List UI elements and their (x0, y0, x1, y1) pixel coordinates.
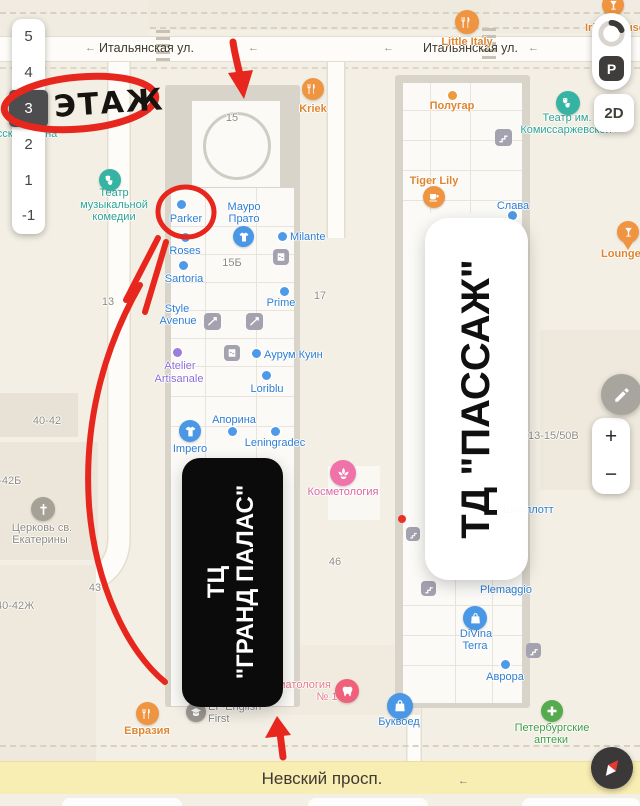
store-marker[interactable] (280, 287, 289, 296)
one-way-arrow-icon: ← (383, 42, 394, 54)
poi-label-lounger[interactable]: LoungeR (601, 248, 640, 260)
passage-line: ТД "ПАССАЖ" (454, 259, 499, 538)
clothing-icon[interactable] (233, 226, 254, 247)
edit-pencil-button[interactable] (601, 374, 640, 415)
room-divider (403, 605, 522, 606)
store-label-mauro-1[interactable]: Мауро (228, 201, 261, 213)
building-block (522, 798, 640, 806)
store-label-style-avenue-2[interactable]: Avenue (159, 315, 196, 327)
poi-label-teatr-muz-2[interactable]: музыкальной (80, 199, 148, 211)
store-label-plemaggio[interactable]: Plemaggio (480, 584, 532, 596)
zoom-out-button[interactable]: − (592, 456, 630, 494)
parking-label: P (607, 61, 616, 77)
poi-label-polugar[interactable]: Полугар (430, 100, 475, 112)
building-block (62, 798, 182, 806)
floor-button-4[interactable]: 4 (12, 55, 45, 91)
room-divider (455, 575, 456, 703)
map-canvas[interactable]: ← Итальянская ул. ← ← Итальянская ул. ← … (0, 0, 640, 806)
building-number: 40-42Ж (0, 600, 34, 612)
store-marker[interactable] (173, 348, 182, 357)
floor-button-2[interactable]: 2 (12, 127, 45, 163)
poi-label-kosmetologia[interactable]: Косметология (308, 486, 379, 498)
room-divider (403, 170, 522, 171)
escalator-icon (204, 313, 221, 330)
store-label-prime[interactable]: Prime (267, 297, 296, 309)
red-dot-marker (398, 515, 406, 523)
elevator-icon (273, 249, 289, 265)
store-marker[interactable] (262, 371, 271, 380)
store-marker[interactable] (179, 261, 188, 270)
store-label-roses[interactable]: Roses (169, 245, 200, 257)
street-label-italyanskaya-left: Итальянская ул. (99, 41, 194, 55)
poi-label-apteki-2[interactable]: аптеки (534, 734, 568, 746)
store-label-aurum-kuin[interactable]: Аурум Куин (264, 349, 323, 361)
poi-label-church-2[interactable]: Екатерины (12, 534, 68, 546)
store-label-divina-2[interactable]: Terra (462, 640, 487, 652)
escalator-icon (246, 313, 263, 330)
poi-label-apteki-1[interactable]: Петербургские (515, 722, 590, 734)
pin-tail (623, 242, 633, 250)
theater-masks-icon[interactable] (556, 91, 580, 115)
bar-pin-icon[interactable] (617, 221, 639, 243)
restaurant-icon[interactable] (455, 10, 479, 34)
store-label-atelier-2[interactable]: Artisanale (155, 373, 204, 385)
store-label-leningradec[interactable]: Leningradec (245, 437, 306, 449)
floor-selector[interactable]: 5 4 3 2 1 -1 (12, 19, 45, 234)
store-label-avrora[interactable]: Аврора (486, 671, 524, 683)
poi-label-little-italy[interactable]: Little Italy (441, 36, 492, 48)
building-number: 17 (314, 290, 326, 302)
poi-label-evrazia[interactable]: Евразия (124, 725, 170, 737)
one-way-arrow-icon: ← (85, 42, 96, 54)
building-number: 13-15/50В (528, 430, 579, 442)
building-number: 40-42 (33, 415, 61, 427)
building-block (0, 565, 96, 761)
one-way-arrow-icon: ← (528, 42, 539, 54)
shopping-bag-icon[interactable] (387, 693, 413, 719)
street-label-nevsky: Невский просп. (262, 769, 383, 789)
store-label-loriblu[interactable]: Loriblu (250, 383, 283, 395)
poi-label-kriek[interactable]: Kriek (299, 103, 327, 115)
stairs-icon (406, 527, 420, 541)
stairs-icon (421, 581, 436, 596)
parking-button[interactable]: P (599, 56, 624, 81)
room-divider (171, 396, 294, 397)
store-label-milante[interactable]: Milante (290, 231, 325, 243)
store-label-mauro-2[interactable]: Прато (229, 213, 260, 225)
floor-button-minus1[interactable]: -1 (12, 198, 45, 234)
floor-button-1[interactable]: 1 (12, 163, 45, 199)
elevator-icon (224, 345, 240, 361)
poi-label-church-1[interactable]: Церковь св. (12, 522, 72, 534)
store-label-atelier-1[interactable]: Atelier (164, 360, 195, 372)
clothing-icon[interactable] (179, 420, 201, 442)
grand-palace-line2: "ГРАНД ПАЛАС" (232, 485, 261, 679)
building-number: 15 (226, 112, 238, 124)
store-marker[interactable] (278, 232, 287, 241)
church-cross-icon[interactable] (31, 497, 55, 521)
cosmetics-flower-icon[interactable] (330, 460, 356, 486)
floor-button-5[interactable]: 5 (12, 19, 45, 55)
floor-button-3-selected[interactable]: 3 (9, 90, 48, 127)
compass-button[interactable] (591, 747, 633, 789)
tooth-icon[interactable] (335, 679, 359, 703)
mode-2d-label: 2D (604, 105, 623, 122)
passage-overlay-text: ТД "ПАССАЖ" (426, 223, 526, 575)
grand-palace-overlay-text: ТЦ "ГРАНД ПАЛАС" (184, 462, 280, 702)
theater-masks-icon[interactable] (99, 169, 121, 191)
building-number: 40-42Б (0, 475, 21, 487)
compass-ring-icon[interactable] (596, 18, 627, 49)
poi-label-teatr-muz-3[interactable]: комедии (92, 211, 135, 223)
store-label-impero[interactable]: Impero (173, 443, 207, 455)
store-label-parker[interactable]: Parker (170, 213, 202, 225)
room-divider (171, 338, 294, 339)
store-marker[interactable] (181, 233, 190, 242)
store-marker[interactable] (177, 200, 186, 209)
building-number: 43 (89, 582, 101, 594)
one-way-arrow-icon: ← (248, 42, 259, 54)
store-label-aporina[interactable]: Апорина (212, 414, 256, 426)
stairs-icon (526, 643, 541, 658)
room-divider (171, 310, 294, 311)
store-marker[interactable] (501, 660, 510, 669)
store-label-style-avenue-1[interactable]: Style (165, 303, 189, 315)
pharmacy-plus-icon[interactable] (541, 700, 563, 722)
store-marker[interactable] (252, 349, 261, 358)
building-number: 46 (329, 556, 341, 568)
stairs-icon (495, 129, 512, 146)
mode-2d-button[interactable]: 2D (594, 94, 634, 132)
one-way-arrow-icon: ← (458, 775, 469, 787)
zoom-in-label: + (605, 425, 617, 449)
grand-palace-line1: ТЦ (203, 566, 232, 598)
cafe-cup-icon[interactable] (423, 186, 445, 208)
zoom-in-button[interactable]: + (592, 418, 630, 456)
building-block (308, 798, 428, 806)
store-label-sartoria[interactable]: Sartoria (165, 273, 204, 285)
restaurant-icon[interactable] (136, 702, 159, 725)
shopping-bag-icon[interactable] (463, 606, 487, 630)
room-divider (171, 226, 294, 227)
building-number: 15Б (222, 257, 241, 269)
building-number: 13 (102, 296, 114, 308)
restaurant-icon[interactable] (302, 78, 324, 100)
zoom-out-label: − (605, 463, 617, 487)
store-marker[interactable] (228, 427, 237, 436)
poi-marker[interactable] (448, 91, 457, 100)
store-marker[interactable] (271, 427, 280, 436)
poi-label-ef-english-2[interactable]: First (208, 713, 229, 725)
